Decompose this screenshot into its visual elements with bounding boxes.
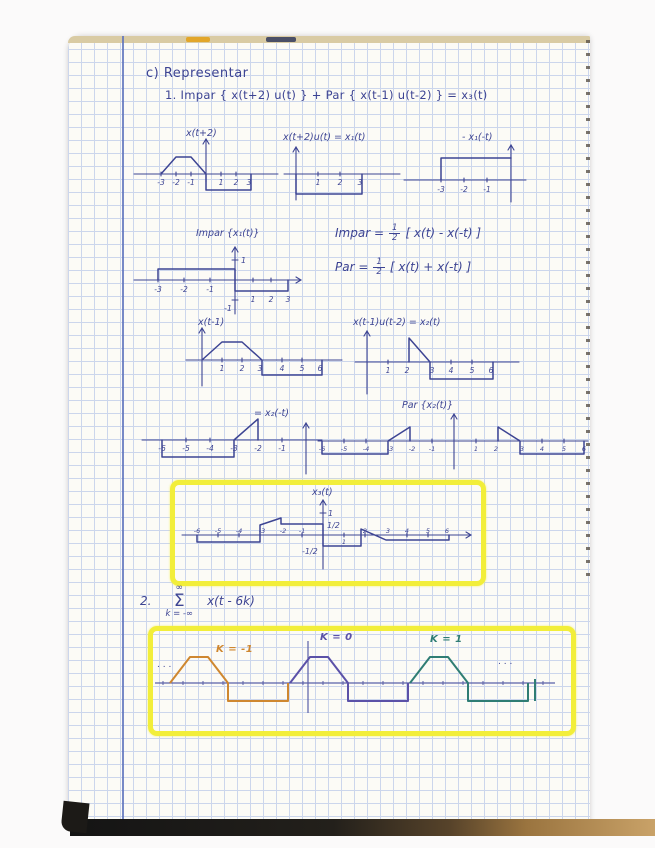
graph-x3: x₃(t) 1 1/2 -1/2 -6 -5 -4 -3 -2 -1 1 2 3… xyxy=(176,485,476,575)
graph-x2: x(t-1)u(t-2) = x₂(t) 1 2 3 4 5 6 xyxy=(351,314,529,406)
y-label-neg1: -1 xyxy=(224,304,232,313)
ellipsis-right: . . . xyxy=(498,657,512,667)
summation-expression: x(t - 6k) xyxy=(207,594,255,608)
margin-line xyxy=(122,36,124,826)
graph-label: x(t-1) xyxy=(197,317,224,328)
graph-impar-x1: Impar {x₁(t)} 1 -1 -3 -2 -1 1 2 3 xyxy=(130,222,310,324)
tick-label: 6 xyxy=(318,364,323,373)
notebook-photo: c) Representar 1. Impar { x(t+2) u(t) } … xyxy=(0,0,655,848)
tick-label: 3 xyxy=(286,295,291,304)
tick-label: 5 xyxy=(300,364,305,373)
tick-label: -2 xyxy=(280,527,286,535)
y-axis xyxy=(303,423,309,474)
tick-label: 3 xyxy=(386,527,390,535)
graph-periodic: . . . . . . xyxy=(153,633,561,721)
tick-label: 3 xyxy=(430,366,435,375)
problem-2-index: 2. xyxy=(140,594,151,608)
tick-label: 3 xyxy=(520,445,524,453)
graph-par-x2: Par {x₂(t)} -6 -5 -4 -3 -2 -1 1 2 3 4 5 … xyxy=(316,397,594,481)
photo-corner-shadow xyxy=(61,801,90,834)
graph-x1: x(t+2)u(t) = x₁(t) 1 2 3 xyxy=(280,128,410,212)
formula-par: Par = 1 2 [ x(t) + x(-t) ] xyxy=(335,258,471,277)
tick-label: 1 xyxy=(342,538,346,546)
tick-label: 5 xyxy=(426,527,430,535)
edge-mark-yellow xyxy=(186,37,210,42)
photo-bottom-edge xyxy=(70,819,655,836)
tick-label: -5 xyxy=(182,444,190,453)
tick-label: 3 xyxy=(358,178,363,187)
tick-label: -2 xyxy=(180,285,188,294)
tick-label: 4 xyxy=(280,364,285,373)
tick-label: 5 xyxy=(562,445,566,453)
graph-x2-reflected: = x₂(-t) -6 -5 -4 -3 -2 -1 xyxy=(136,404,331,482)
tick-label: 1 xyxy=(474,445,478,453)
tick-label: -3 xyxy=(259,527,265,535)
tick-label: 3 xyxy=(247,178,252,187)
tick-label: -6 xyxy=(319,445,325,453)
fraction-half: 1 2 xyxy=(389,224,400,243)
tick-label: -2 xyxy=(409,445,415,453)
tick-label: 6 xyxy=(445,527,449,535)
tick-label: 1 xyxy=(386,366,391,375)
edge-mark-dark xyxy=(266,37,296,42)
tick-label: 2 xyxy=(338,178,343,187)
signal-curve xyxy=(441,158,511,180)
tick-label: 1 xyxy=(219,178,224,187)
tick-label: 4 xyxy=(540,445,544,453)
tick-label: -6 xyxy=(158,444,166,453)
tick-label: -2 xyxy=(254,444,262,453)
tick-label: 2 xyxy=(234,178,239,187)
impar-rhs: [ x(t) - x(-t) ] xyxy=(405,226,481,240)
period-k-minus-1 xyxy=(170,657,288,701)
tick-label: 3 xyxy=(258,364,263,373)
graph-label: - x₁(-t) xyxy=(462,132,492,143)
tick-label: 1 xyxy=(251,295,256,304)
y-label-half: 1/2 xyxy=(327,521,340,530)
y-label-1: 1 xyxy=(328,509,333,518)
tick-label: 4 xyxy=(405,527,409,535)
graph-label: x(t+2)u(t) = x₁(t) xyxy=(282,132,366,143)
x-axis xyxy=(134,277,301,283)
tick-label: -1 xyxy=(483,185,490,194)
graph-label: Impar {x₁(t)} xyxy=(196,228,260,239)
summation-symbol: ∞ Σ k = -∞ xyxy=(165,584,193,619)
tick-label: 6 xyxy=(582,445,586,453)
tick-label: -3 xyxy=(230,444,238,453)
label-k-0: K = 0 xyxy=(320,632,353,643)
tick-label: -6 xyxy=(194,527,200,535)
tick-label: -1 xyxy=(299,527,305,535)
graph-x-t-minus-1: x(t-1) 1 2 3 4 5 6 xyxy=(180,314,350,400)
tick-label: -5 xyxy=(215,527,221,535)
y-label-neg-half: -1/2 xyxy=(302,547,318,556)
graph-neg-x1: - x₁(-t) -3 -2 -1 xyxy=(396,128,536,212)
tick-label: 2 xyxy=(405,366,410,375)
tick-label: -1 xyxy=(206,285,213,294)
tick-label: 2 xyxy=(494,445,498,453)
signal-curve xyxy=(296,174,362,194)
par-lhs: Par = xyxy=(335,260,368,274)
problem-2-statement: 2. ∞ Σ k = -∞ x(t - 6k) xyxy=(140,584,255,619)
tick-label: -1 xyxy=(429,445,435,453)
label-k-minus-1: K = -1 xyxy=(216,644,253,655)
tick-label: -5 xyxy=(341,445,347,453)
ellipsis-left: . . . xyxy=(157,660,171,670)
tick-label: 2 xyxy=(269,295,274,304)
tick-label: -1 xyxy=(187,178,194,187)
par-rhs: [ x(t) + x(-t) ] xyxy=(390,260,471,274)
tick-label: 1 xyxy=(220,364,225,373)
tick-label: 2 xyxy=(240,364,245,373)
perforation-holes xyxy=(586,40,590,585)
notebook-page: c) Representar 1. Impar { x(t+2) u(t) } … xyxy=(68,36,590,826)
page-top-edge xyxy=(68,36,590,43)
y-label-1: 1 xyxy=(241,256,246,265)
formula-impar: Impar = 1 2 [ x(t) - x(-t) ] xyxy=(335,224,481,243)
graph-x-t-plus-2: x(t+2) -3 -2 -1 1 2 3 xyxy=(128,126,283,211)
graph-label: x(t+2) xyxy=(185,128,217,139)
tick-label: -2 xyxy=(460,185,468,194)
tick-label: 2 xyxy=(363,527,367,535)
graph-label: = x₂(-t) xyxy=(254,408,289,419)
tick-label: -1 xyxy=(278,444,285,453)
tick-label: 1 xyxy=(316,178,321,187)
section-title: c) Representar xyxy=(146,66,249,81)
problem-1-statement: 1. Impar { x(t+2) u(t) } + Par { x(t-1) … xyxy=(165,88,488,102)
tick-label: -4 xyxy=(206,444,214,453)
impar-lhs: Impar = xyxy=(335,226,384,240)
graph-label: x(t-1)u(t-2) = x₂(t) xyxy=(352,317,440,328)
y-axis xyxy=(199,328,205,386)
tick-label: -2 xyxy=(172,178,180,187)
period-k-1 xyxy=(410,657,535,701)
tick-label: -3 xyxy=(437,185,445,194)
graph-label: x₃(t) xyxy=(311,487,333,498)
tick-label: -3 xyxy=(157,178,165,187)
tick-label: -3 xyxy=(387,445,393,453)
graph-label: Par {x₂(t)} xyxy=(402,400,453,411)
y-axis xyxy=(508,145,514,202)
tick-label: -4 xyxy=(236,527,242,535)
fraction-half: 1 2 xyxy=(373,258,384,277)
tick-label: 4 xyxy=(449,366,454,375)
label-k-1: K = 1 xyxy=(430,634,463,645)
tick-label: -3 xyxy=(154,285,162,294)
tick-label: 6 xyxy=(489,366,494,375)
tick-label: 5 xyxy=(470,366,475,375)
tick-label: -4 xyxy=(363,445,369,453)
